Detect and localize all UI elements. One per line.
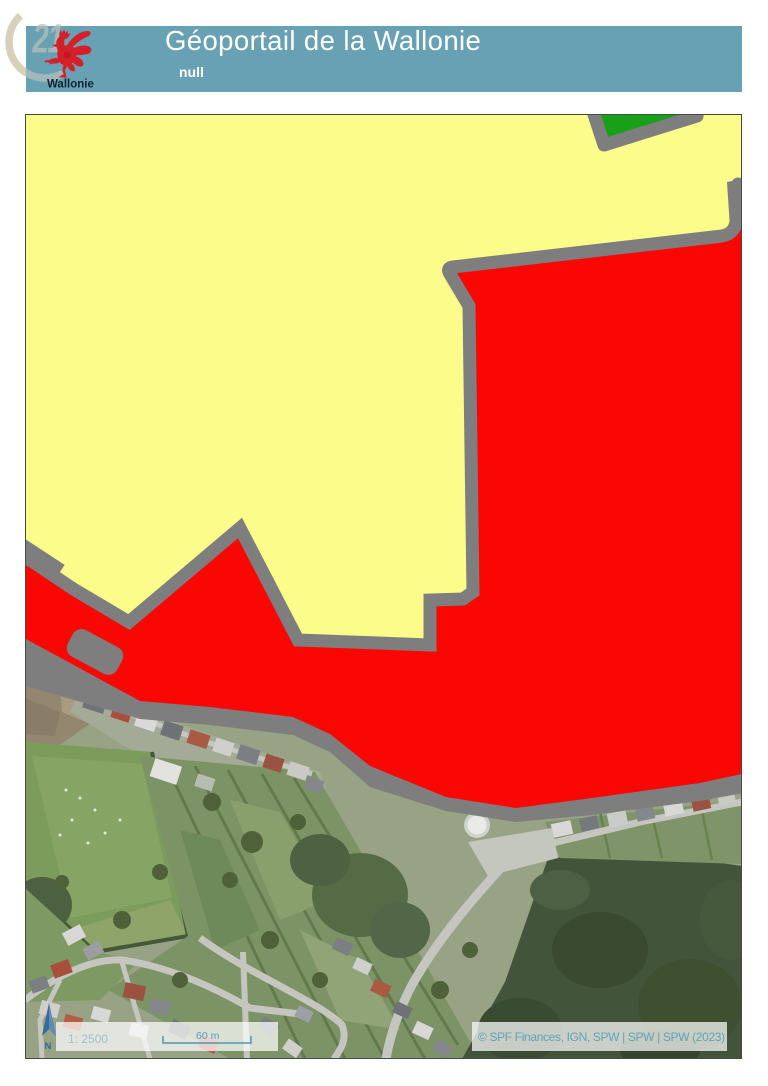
- svg-text:1: 2500: 1: 2500: [68, 1032, 108, 1046]
- svg-text:N: N: [45, 1041, 52, 1052]
- svg-text:60 m: 60 m: [196, 1030, 220, 1042]
- svg-text:Géoportail de la Wallonie: Géoportail de la Wallonie: [165, 25, 481, 56]
- svg-text:Wallonie: Wallonie: [47, 79, 94, 91]
- svg-text:© SPF Finances, IGN, SPW | SPW: © SPF Finances, IGN, SPW | SPW | SPW (20…: [478, 1030, 725, 1044]
- svg-text:null: null: [179, 64, 204, 80]
